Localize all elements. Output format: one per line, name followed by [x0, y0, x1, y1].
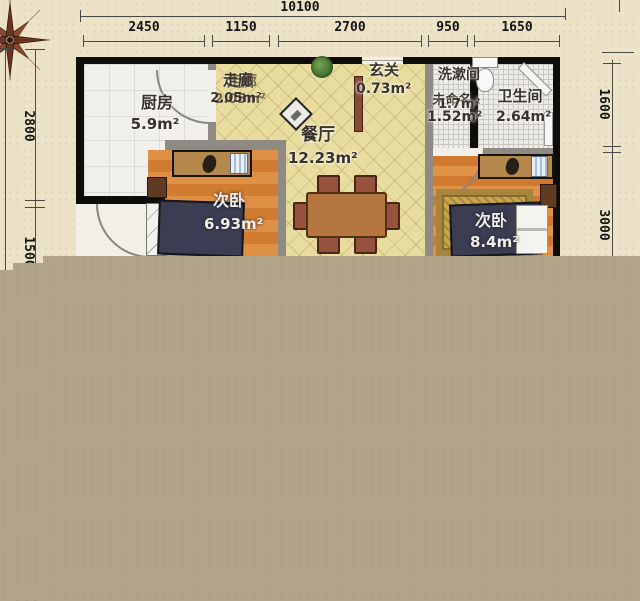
dim-left-tick-top [25, 49, 45, 50]
dim-seg-950-label: 950 [429, 20, 467, 35]
dim-total-label: 10100 [270, 1, 330, 15]
kitchen-label: 厨房 [125, 94, 189, 112]
wall-bedroom-left-right [278, 150, 286, 256]
dim-right-3000-label: 3000 [591, 203, 615, 247]
compass-rose-icon [0, 0, 50, 80]
dim-ext-stub-top-right [619, 0, 620, 12]
dim-left-tick-mid1 [25, 200, 45, 201]
dim-seg-1650: 1650 [474, 35, 560, 47]
wall-corridor-bottom [165, 140, 286, 150]
dim-total-tick-right [565, 8, 566, 20]
dining-area: 12.23m² [288, 150, 350, 167]
dim-seg-2450-label: 2450 [84, 20, 204, 35]
bedroom-left-label: 次卧 [206, 192, 252, 210]
washroom-area: 1.52m² [427, 110, 477, 125]
dim-total-tick-left [80, 10, 81, 22]
corridor-area: 2.05m² [210, 92, 262, 106]
corridor-label: 走廊 [212, 72, 264, 89]
dim-right-tick-mid1 [603, 146, 621, 147]
dim-seg-1150: 1150 [212, 35, 270, 47]
cutoff-block-left-step2 [0, 270, 13, 601]
bathroom-label: 卫生间 [492, 88, 548, 105]
dim-total-line [80, 16, 566, 17]
cutoff-block-main [43, 256, 640, 601]
wall-left [76, 64, 84, 204]
dim-left-tick-mid2 [25, 207, 45, 208]
shirt-icon-right [531, 156, 548, 177]
dim-seg-2450: 2450 [83, 35, 205, 47]
bedroom-left-area: 6.93m² [204, 216, 252, 233]
floor-plan-canvas: 10100 2450 1150 2700 950 1650 2800 1500 … [0, 0, 640, 601]
dining-label: 餐厅 [292, 126, 344, 145]
dim-seg-1650-label: 1650 [475, 20, 559, 35]
dim-right-1600-label: 1600 [591, 82, 615, 126]
dim-right-tick-mid2 [603, 152, 621, 153]
dim-left-outer-line [5, 45, 6, 270]
bedroom-right-label: 次卧 [468, 212, 514, 230]
dim-right-tick-top [603, 63, 621, 64]
dim-left-outer-tick [0, 48, 13, 49]
entry-label: 玄关 [362, 62, 406, 79]
dining-chair [385, 202, 400, 230]
dim-seg-2700-label: 2700 [279, 20, 421, 35]
shirt-icon-left [230, 153, 248, 174]
bedroom-right-area: 8.4m² [470, 234, 514, 251]
plant-icon [311, 56, 333, 78]
dim-seg-2700: 2700 [278, 35, 422, 47]
entry-area: 0.73m² [356, 82, 408, 97]
bathroom-area: 2.64m² [496, 110, 546, 125]
cutoff-block-left-step1 [13, 263, 43, 601]
kitchen-area: 5.9m² [127, 116, 183, 133]
dim-seg-1150-label: 1150 [213, 20, 269, 35]
dim-seg-950: 950 [428, 35, 468, 47]
washroom-label: 洗漱间 [428, 68, 490, 83]
dining-table [306, 192, 387, 238]
dim-left-2800-label: 2800 [16, 104, 40, 148]
wall-right [553, 64, 560, 256]
nightstand-bedroom-left [147, 177, 167, 198]
dim-ext-stub-right [602, 52, 634, 53]
bed-pillows-bedroom-right [516, 205, 548, 254]
